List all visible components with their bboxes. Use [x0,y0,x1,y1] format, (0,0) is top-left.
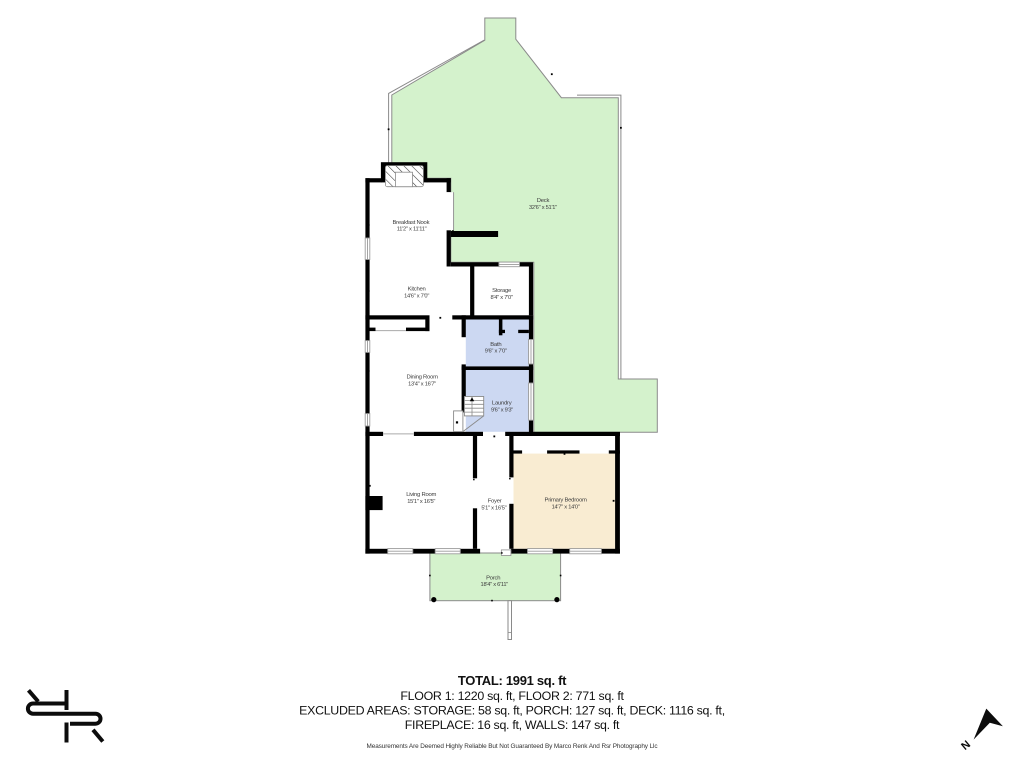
svg-text:18'4" x 6'11": 18'4" x 6'11" [481,582,509,588]
svg-text:9'6" x 7'0": 9'6" x 7'0" [485,349,507,355]
svg-text:Living Room: Living Room [406,492,436,498]
svg-text:8'4" x 7'0": 8'4" x 7'0" [491,295,513,301]
svg-text:Dining Room: Dining Room [406,375,438,381]
svg-text:32'6" x 51'1": 32'6" x 51'1" [529,205,557,211]
svg-text:11'2" x 11'11": 11'2" x 11'11" [397,227,427,233]
svg-text:Laundry: Laundry [492,401,512,407]
svg-text:Storage: Storage [492,288,512,294]
svg-text:FLOOR 1: 1220 sq. ft, FLOOR 2:: FLOOR 1: 1220 sq. ft, FLOOR 2: 771 sq. f… [400,689,624,703]
svg-text:FIREPLACE: 16 sq. ft, WALLS: 1: FIREPLACE: 16 sq. ft, WALLS: 147 sq. ft [405,718,620,732]
svg-text:14'6" x 7'0": 14'6" x 7'0" [404,293,429,299]
svg-text:5'1" x 16'5": 5'1" x 16'5" [481,505,506,511]
svg-text:Breakfast Nook: Breakfast Nook [393,220,430,226]
svg-text:Porch: Porch [486,576,500,582]
svg-text:15'1" x 16'5": 15'1" x 16'5" [407,499,435,505]
svg-text:Primary Bedroom: Primary Bedroom [545,498,587,504]
svg-text:13'4" x 16'7": 13'4" x 16'7" [408,381,436,387]
svg-text:Foyer: Foyer [488,498,502,504]
svg-text:Deck: Deck [537,198,550,204]
svg-text:9'6" x 9'3": 9'6" x 9'3" [491,407,513,413]
svg-text:14'7" x 14'0": 14'7" x 14'0" [552,505,580,511]
svg-text:Bath: Bath [490,342,501,348]
svg-text:EXCLUDED AREAS: STORAGE: 58 sq: EXCLUDED AREAS: STORAGE: 58 sq. ft, PORC… [299,704,725,718]
svg-text:Kitchen: Kitchen [408,286,426,292]
svg-text:Measurements Are Deemed Highly: Measurements Are Deemed Highly Reliable … [367,743,659,750]
svg-text:TOTAL: 1991 sq. ft: TOTAL: 1991 sq. ft [458,673,567,688]
